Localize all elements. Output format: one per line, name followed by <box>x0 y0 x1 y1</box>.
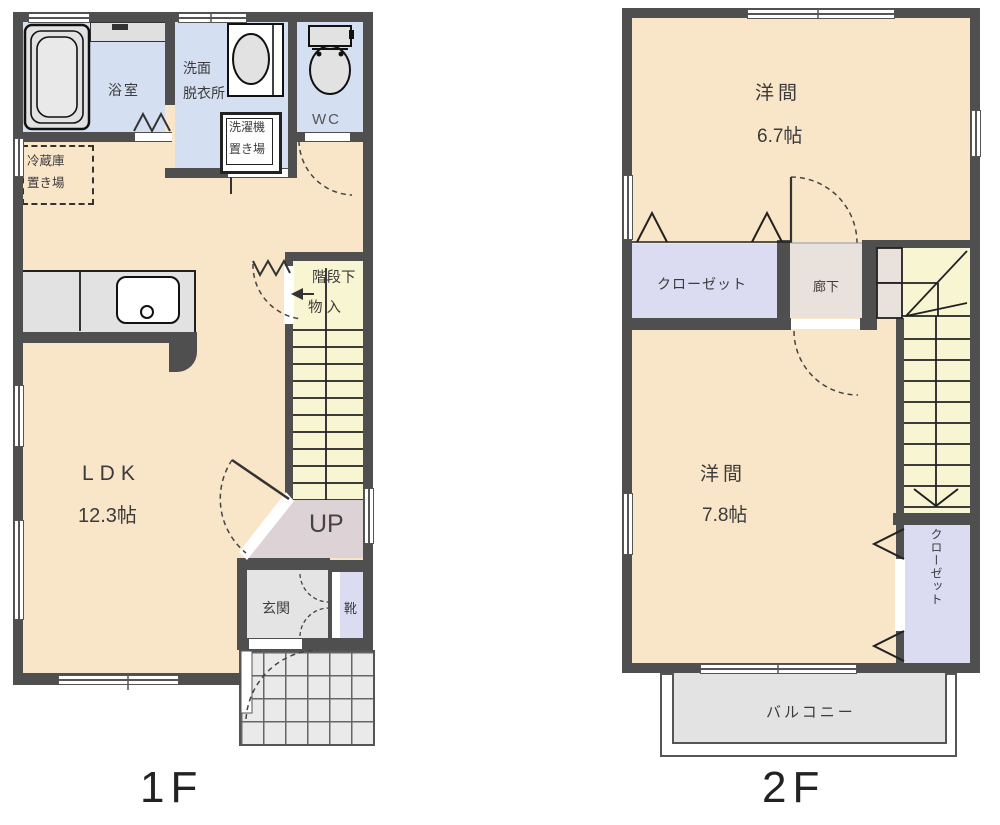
closet-side-bifold-bottom <box>874 631 904 661</box>
floor-plan: 浴室 洗面 脱衣所 WC 洗濯機 置き場 冷蔵庫 置き場 LDK 12.3帖 階… <box>0 0 1000 825</box>
vanity-sink-icon <box>228 24 283 96</box>
laundry-label-2: 置き場 <box>229 140 265 157</box>
fridge-label-2: 置き場 <box>27 172 65 191</box>
ldk-door-arc <box>220 460 246 553</box>
up-label: UP <box>309 510 344 539</box>
room2-label: 洋間 <box>700 459 746 486</box>
ldk-label: LDK <box>82 462 141 486</box>
closet-side-label: クローゼット <box>928 528 945 660</box>
balcony-label: バルコニー <box>766 701 856 722</box>
stair-storage-label-1: 階段下 <box>312 266 356 287</box>
shoebox-door-arc-top <box>300 574 329 602</box>
wc-door-arc <box>299 141 352 195</box>
ldk-size-label: 12.3帖 <box>78 499 137 528</box>
washroom-label-1: 洗面 <box>183 58 211 78</box>
room2-size-label: 7.8帖 <box>702 500 747 527</box>
closet-top-bifold-left <box>637 213 667 242</box>
wc-label: WC <box>312 111 341 128</box>
shoes-label: 靴 <box>344 598 357 617</box>
room1-door-arc <box>791 177 857 243</box>
bathtub-icon <box>25 25 89 129</box>
ldk-door-leaf <box>232 460 289 499</box>
kitchen-sink-icon <box>80 271 179 331</box>
front-door-leaf <box>241 651 252 713</box>
closet-top-label: クローゼット <box>657 274 747 294</box>
floor1-title: 1F <box>140 763 203 813</box>
stair-storage-door-zigzag <box>253 261 290 275</box>
front-door-arc <box>246 650 318 719</box>
hallway-label: 廊下 <box>813 276 839 295</box>
floor2-title: 2F <box>762 763 825 813</box>
closet-top-bifold-right <box>752 213 782 242</box>
bath-label: 浴室 <box>108 80 140 100</box>
closet-side-bifold-top <box>874 529 904 559</box>
fridge-label-1: 冷蔵庫 <box>27 150 65 169</box>
bath-counter-notch <box>112 24 128 30</box>
shoebox-door-arc-bottom <box>300 608 329 636</box>
entrance-label: 玄関 <box>262 598 290 618</box>
room2-door-arc <box>794 331 858 395</box>
washroom-label-2: 脱衣所 <box>183 83 225 103</box>
bath-door-zigzag <box>134 114 170 131</box>
toilet-icon <box>309 26 354 94</box>
stair-storage-label-2: 物 入 <box>308 296 341 317</box>
room1-label: 洋間 <box>755 78 801 105</box>
stairs-2f-lines <box>877 248 970 507</box>
room1-size-label: 6.7帖 <box>757 121 802 148</box>
laundry-label-1: 洗濯機 <box>229 118 265 135</box>
